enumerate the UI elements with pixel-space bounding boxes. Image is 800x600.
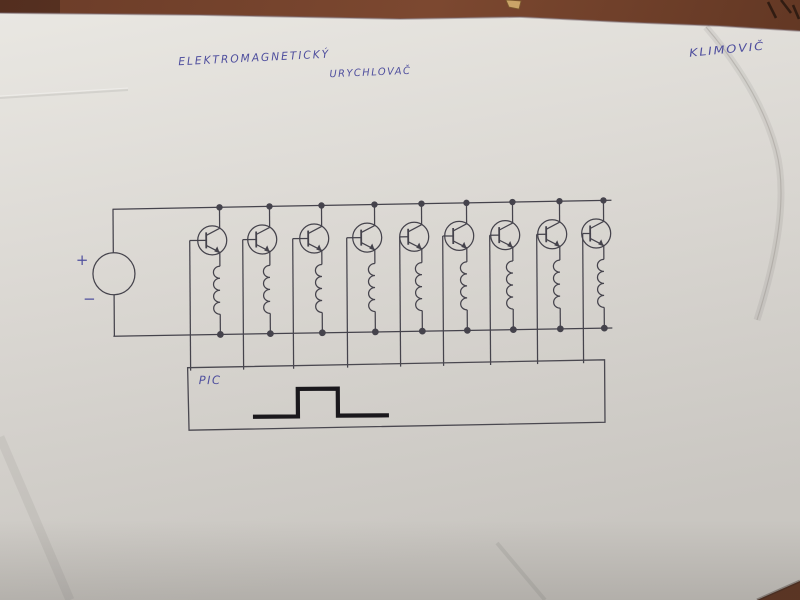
source-minus-label: −: [83, 290, 96, 308]
junction-dot: [510, 326, 517, 333]
junction-dot: [319, 329, 326, 336]
junction-dot: [464, 327, 471, 334]
photo-of-schematic: ELEKTROMAGNETICKÝ URYCHLOVAČ KLIMOVIČ + …: [0, 0, 800, 600]
pic-label: PIC: [199, 373, 222, 387]
schematic-photo-canvas: ELEKTROMAGNETICKÝ URYCHLOVAČ KLIMOVIČ + …: [0, 0, 800, 600]
junction-dot: [419, 328, 426, 335]
junction-dot: [267, 330, 274, 337]
junction-dot: [557, 325, 564, 332]
junction-dot: [217, 331, 224, 338]
junction-dot: [601, 325, 608, 332]
source-plus-label: +: [76, 251, 89, 269]
junction-dot: [372, 328, 379, 335]
